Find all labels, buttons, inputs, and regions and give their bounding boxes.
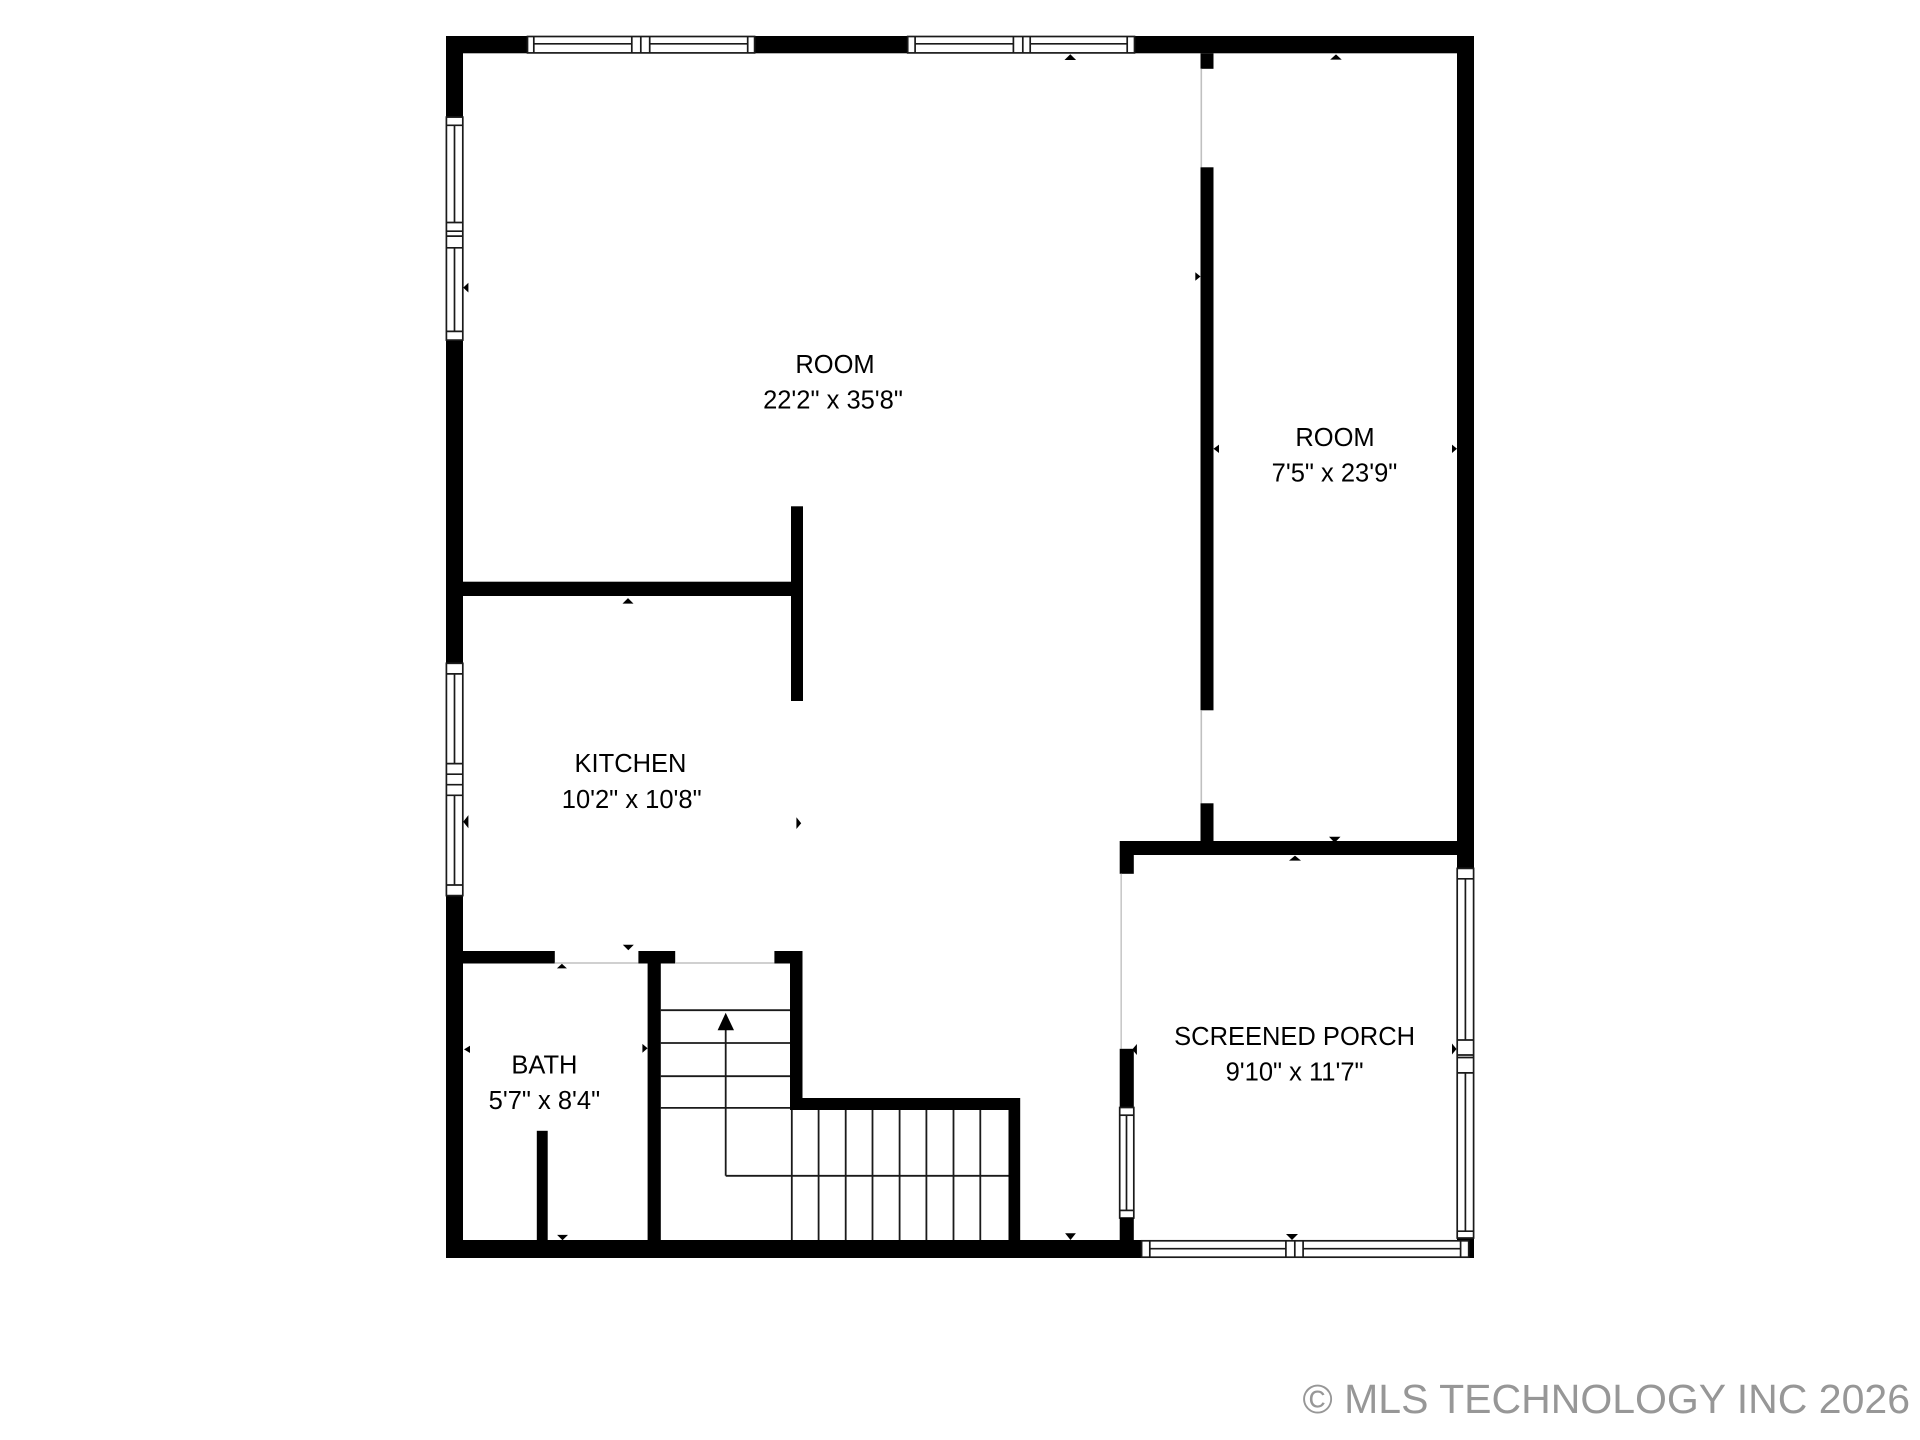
svg-text:7'5" x 23'9": 7'5" x 23'9" (1272, 460, 1398, 488)
svg-text:© MLS TECHNOLOGY INC 2026: © MLS TECHNOLOGY INC 2026 (1303, 1376, 1910, 1422)
svg-text:5'7" x 8'4": 5'7" x 8'4" (489, 1087, 601, 1115)
svg-text:BATH: BATH (511, 1052, 577, 1080)
svg-text:22'2" x 35'8": 22'2" x 35'8" (763, 387, 903, 415)
svg-text:10'2" x 10'8": 10'2" x 10'8" (562, 786, 702, 814)
svg-text:ROOM: ROOM (1295, 424, 1374, 452)
svg-text:ROOM: ROOM (795, 351, 874, 379)
svg-text:9'10" x 11'7": 9'10" x 11'7" (1226, 1059, 1364, 1087)
svg-text:SCREENED PORCH: SCREENED PORCH (1174, 1023, 1415, 1051)
svg-text:KITCHEN: KITCHEN (575, 750, 687, 778)
